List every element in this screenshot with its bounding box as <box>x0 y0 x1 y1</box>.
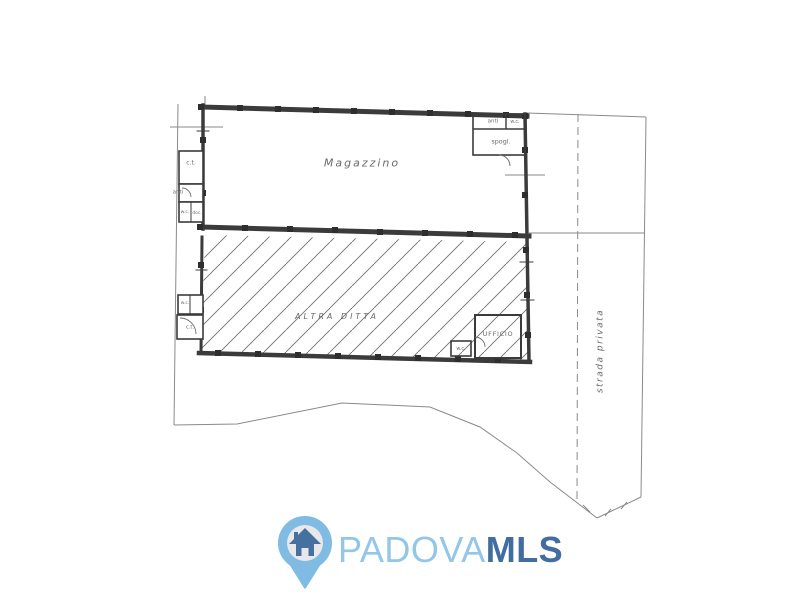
wc-office-label: w.c. <box>456 347 465 352</box>
wc-lower-left-label: w.c. <box>181 301 189 305</box>
ufficio-label: UFFICIO <box>483 332 514 338</box>
floor-plan-drawing <box>0 0 800 600</box>
wc-upper-label: w.c. <box>181 210 190 215</box>
padovamls-watermark: PADOVAMLS <box>276 514 563 592</box>
hatched-area-altra-ditta <box>201 235 529 360</box>
doccia-upper-label: doc. <box>192 211 201 215</box>
ct-upper-label: c.t. <box>186 160 195 166</box>
anti-top-right-label: anti <box>488 118 499 124</box>
floor-plan-page: Magazzino ALTRA DITTA UFFICIO w.c. c.t. … <box>0 0 800 600</box>
spogliatoio-label: spogl. <box>491 139 510 145</box>
brand-mls: MLS <box>486 529 564 570</box>
wc-top-right-label: w.c. <box>510 120 519 125</box>
house-pin-icon <box>276 515 334 591</box>
anti-upper-label: anti <box>173 189 184 195</box>
strada-privata-label: strada privata <box>597 309 606 393</box>
brand-wordmark: PADOVAMLS <box>338 529 563 571</box>
ct-lower-left-label: c.t. <box>186 324 194 329</box>
brand-padova: PADOVA <box>338 529 486 570</box>
magazzino-label: Magazzino <box>324 158 400 169</box>
altra-ditta-label: ALTRA DITTA <box>295 313 379 321</box>
